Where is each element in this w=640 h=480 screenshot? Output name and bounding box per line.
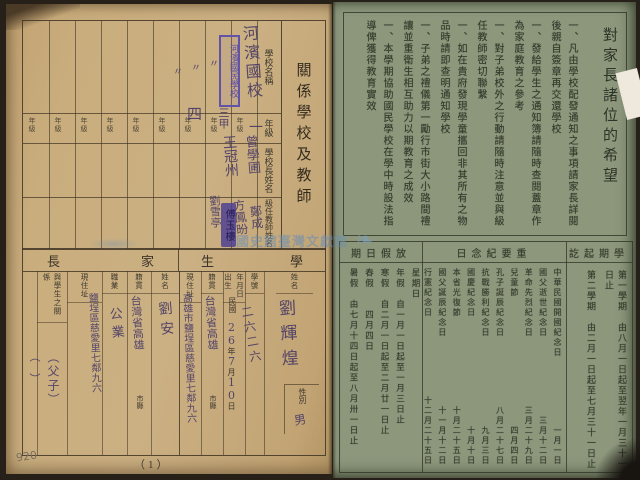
hopes-title: 對家長諸位的希望 (599, 27, 620, 227)
item-text: 如在貴府發現學童攜回非其所有之物品時請即查明通知學校 (438, 20, 466, 227)
memorial-header: 日念紀要重 (422, 242, 566, 262)
divider (566, 242, 567, 472)
handwritten-grade: 四 (187, 103, 202, 124)
holiday-item: 暑假 由七月十四日起至八月卅一日止 (345, 264, 361, 470)
ditto-mark: 〃 (173, 63, 183, 78)
memorial-day: 本省光復節 十月二十五日 (451, 264, 465, 470)
hope-item: 一、如在貴府發現學童攜回非其所有之物品時請即查明通知學校 (433, 20, 469, 228)
item-bullet: 一、 (566, 20, 577, 43)
teacher-name-seal: 傅玉樓 (221, 203, 236, 247)
term-item: 第二學期 由二月一日起至七月三十一日止 (571, 264, 598, 470)
page-fold-shadow (328, 0, 336, 480)
memorial-day-name: 抗戰勝利紀念日 (480, 268, 491, 338)
month-label: 月 (227, 368, 236, 376)
item-text: 凡由學校配發通知之事項請家長詳閱後親自簽章再交還學校 (549, 20, 577, 227)
item-bullet: 一、 (529, 20, 540, 43)
header-name: 姓名 (160, 273, 171, 290)
grade-cell-label: 年級 (235, 117, 245, 133)
item-bullet: 一、 (418, 20, 429, 43)
memorial-day: 國父誕辰紀念日 十一月十二日 (436, 264, 450, 470)
scanned-booklet: 年級 年級 年級 年級 年級 年級 年級 年級 年級 學校名稱 年級 學校長姓名… (0, 0, 640, 480)
table-column: 年級 (179, 21, 206, 249)
watermark-glow (88, 238, 140, 250)
origin-suffix: 市縣 (135, 395, 145, 409)
day-label: 日 (227, 402, 236, 410)
header-birth: 年月日 (235, 273, 246, 299)
memorial-day-name: 孔子誕辰紀念日 (494, 268, 505, 338)
school-teacher-table: 年級 年級 年級 年級 年級 年級 年級 年級 年級 學校名稱 年級 學校長姓名… (22, 20, 326, 250)
birth-month: 7 (225, 355, 238, 368)
holiday-item: 星期日 (407, 264, 423, 470)
grade-cell-label: 年級 (131, 117, 141, 133)
memorial-day-date: 十一月十二日 (437, 406, 448, 466)
table-column: 年級 (23, 21, 50, 249)
memorial-day: 中華民國開國紀念日 一月一日 (552, 264, 566, 470)
header-origin: 籍貫 (207, 273, 218, 290)
holiday-item: 春假 四月四日 (360, 264, 376, 470)
memorial-day-date: 三月二十九日 (523, 406, 534, 466)
table-column: 年級 (153, 21, 180, 249)
table-column: 年級 (49, 21, 76, 249)
memorial-day-name: 本省光復節 (451, 268, 462, 318)
memorial-day: 兒童節 四月四日 (508, 264, 522, 470)
memorial-day-name: 國慶紀念日 (466, 268, 477, 318)
item-bullet: 一、 (381, 20, 392, 43)
year-label: 年 (227, 347, 236, 355)
hope-item: 一、本學期協助國民學校在學中時設法指導俾獲得教育實效 (359, 20, 395, 228)
parent-label-char: 長 (47, 251, 60, 270)
value-student-name: 劉輝煌 (273, 298, 303, 391)
table-line (23, 113, 281, 114)
item-bullet: 一、 (455, 20, 466, 43)
memorial-day-date: 十二月二十五日 (422, 396, 433, 466)
holiday-item: 年假 自一月一日起至一月三日止 (391, 264, 407, 470)
grade-cell-label: 年級 (27, 117, 37, 133)
memorial-day-date: 四月四日 (509, 426, 520, 466)
memorial-day-name: 革命先烈紀念日 (523, 268, 534, 338)
form-section-band: 長 家 生 學 (23, 249, 325, 272)
value-sex: 男 (293, 410, 308, 429)
memorial-day-date: 九月三日 (480, 426, 491, 466)
grade-cell-label: 年級 (79, 117, 89, 133)
table-column: 年級 (127, 21, 154, 249)
memorial-day-name: 中華民國開國紀念日 (552, 268, 563, 358)
hope-item: 一、凡由學校配發通知之事項請家長詳閱後親自簽章再交還學校 (544, 20, 580, 228)
grade-cell-label: 年級 (53, 117, 63, 133)
item-text: 本學期協助國民學校在學中時設法指導俾獲得教育實效 (364, 20, 392, 227)
memorial-day-date: 一月一日 (552, 426, 563, 466)
ditto-mark: 〃 (209, 55, 219, 70)
header-number: 學號 (249, 273, 260, 290)
memorial-day-date: 十月十日 (466, 426, 477, 466)
value-remarks: （ ） (26, 351, 42, 445)
value-parent-address: 鹽埕區慈愛里七鄰九六 (70, 293, 104, 454)
memorial-day: 抗戰勝利紀念日 九月三日 (480, 264, 494, 470)
memorial-day-name: 國父逝世紀念日 (538, 268, 549, 338)
parent-section: 長 家 (23, 249, 179, 271)
memorial-day-name: 兒童節 (509, 268, 520, 298)
hopes-list: 一、凡由學校配發通知之事項請家長詳閱後親自簽章再交還學校一、發給學生之通知簿請隨… (352, 20, 580, 228)
header-birth: 出生 (223, 273, 234, 299)
hopes-box: 對家長諸位的希望 一、凡由學校配發通知之事項請家長詳閱後親自簽章再交還學校一、發… (343, 12, 627, 236)
parent-label-char: 家 (141, 251, 154, 270)
header-origin: 籍貫 (134, 273, 145, 290)
item-bullet: 一、 (492, 20, 503, 43)
term-header: 訖起期學 (566, 242, 632, 262)
birth-year: 26 (225, 321, 238, 347)
memorial-day: 國父逝世紀念日 三月十二日 (537, 264, 551, 470)
item-text: 對子弟校外之行動請隨時注意並與級任教師密切聯繫 (475, 20, 503, 227)
memorial-day: 國慶紀念日 十月十日 (465, 264, 479, 470)
hope-item: 一、發給學生之通知簿請隨時查閱蓋章作為家庭教育之參考 (507, 20, 543, 228)
memorial-day-date: 十月二十五日 (451, 406, 462, 466)
origin-suffix: 市縣 (208, 395, 218, 409)
holiday-item: 寒假 自二月一日起至二月廿一日止 (376, 264, 392, 470)
right-page: 對家長諸位的希望 一、凡由學校配發通知之事項請家長詳閱後親自簽章再交還學校一、發… (333, 2, 636, 478)
holiday-list: 星期日年假 自一月一日起至一月三日止寒假 自二月一日起至二月廿一日止春假 四月四… (342, 264, 422, 470)
memorial-day: 孔子誕辰紀念日 八月二十七日 (494, 264, 508, 470)
header-relation: 與學生之關係 (41, 273, 63, 319)
value-relation: （父子） (45, 351, 62, 445)
calendar-box: 期日假放 日念紀要重 訖起期學 第一學期 由八月一日起至翌年一月三十一日止第二學… (339, 241, 633, 473)
student-section: 生 學 (179, 249, 325, 271)
ditto-mark: 〃 (191, 59, 201, 74)
memorial-day: 行憲紀念日 十二月二十五日 (422, 264, 436, 470)
calendar-header-band: 期日假放 日念紀要重 訖起期學 (340, 242, 632, 263)
sex-cell: 性別 男 (284, 384, 319, 434)
grade-cell-label: 年級 (105, 117, 115, 133)
item-text: 發給學生之通知簿請隨時查閱蓋章作為家庭教育之參考 (512, 20, 540, 227)
table-column: 年級 (101, 21, 128, 249)
value-birth-date: 26年7月10日 (225, 321, 238, 451)
grade-cell-label: 年級 (157, 117, 167, 133)
corner-shadow (596, 438, 640, 480)
header-name: 姓名 (289, 273, 300, 290)
header-occupation: 職業 (109, 273, 120, 290)
page-number: （1） (134, 456, 171, 472)
student-label-char: 生 (201, 251, 214, 270)
memorial-day-name: 國父誕辰紀念日 (437, 268, 448, 338)
table-column: 年級 (75, 21, 102, 249)
table-title: 關係學校及教師 (293, 62, 314, 209)
item-text: 子弟之禮儀第一勵行市街大小路間禮讓並重衛生相互助力以期教育之成效 (401, 20, 429, 227)
memorial-day-date: 八月二十七日 (494, 406, 505, 466)
student-label-char: 學 (290, 251, 303, 270)
memorial-day-list: 中華民國開國紀念日 一月一日 國父逝世紀念日 三月十二日 革命先烈紀念日 三月二… (422, 264, 566, 470)
holiday-header: 期日假放 (340, 242, 422, 262)
student-parent-form: 長 家 生 學 與學生之關係 現住址 職業 籍貫 市縣 (22, 248, 326, 456)
birth-era: 民國 (227, 297, 238, 313)
pencil-note: 920 (15, 449, 38, 465)
memorial-day-date: 三月十二日 (538, 416, 549, 466)
memorial-day-name: 行憲紀念日 (422, 268, 433, 318)
table-title-column: 關係學校及教師 (281, 21, 325, 249)
memorial-day: 革命先烈紀念日 三月二十九日 (523, 264, 537, 470)
left-page: 年級 年級 年級 年級 年級 年級 年級 年級 年級 學校名稱 年級 學校長姓名… (6, 4, 332, 474)
hope-item: 一、對子弟校外之行動請隨時注意並與級任教師密切聯繫 (470, 20, 506, 228)
birth-day: 10 (225, 376, 238, 402)
hope-item: 一、子弟之禮儀第一勵行市街大小路間禮讓並重衛生相互助力以期教育之成效 (396, 20, 432, 228)
